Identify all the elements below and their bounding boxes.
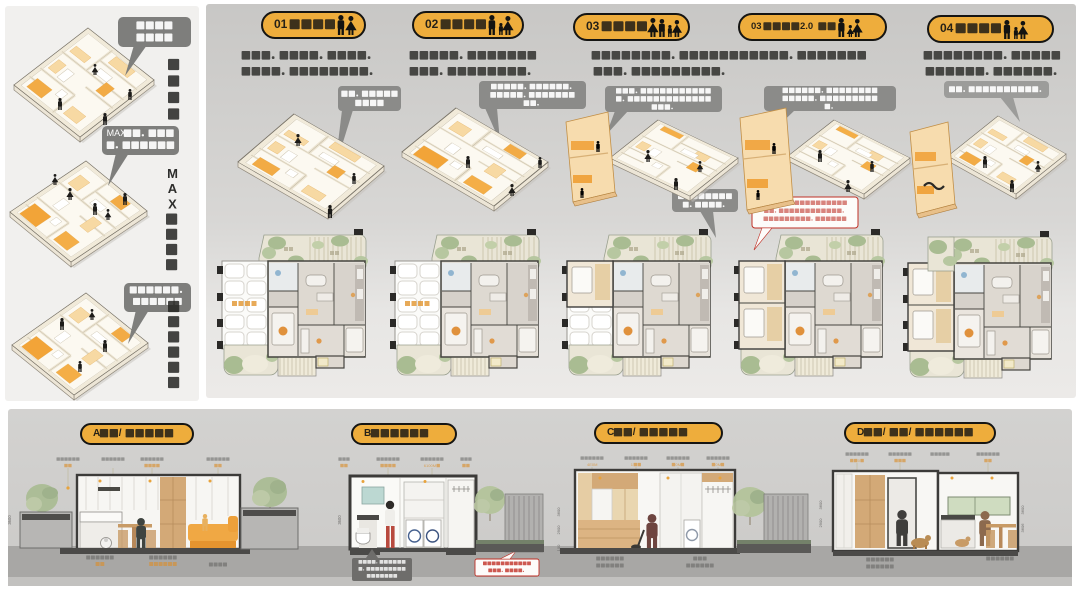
svg-text:03: 03	[751, 21, 762, 32]
svg-text:A: A	[93, 428, 100, 439]
svg-text:B: B	[364, 428, 371, 439]
svg-text:0M: 0M	[676, 462, 682, 467]
svg-text:MAX: MAX	[107, 128, 127, 138]
svg-text:6100M: 6100M	[424, 463, 436, 468]
svg-text:3606: 3606	[1020, 523, 1025, 533]
svg-text:3600: 3600	[7, 515, 12, 525]
svg-text:01: 01	[274, 17, 288, 31]
svg-text:D: D	[857, 427, 864, 438]
svg-text:2.0: 2.0	[800, 21, 813, 32]
svg-text:3600: 3600	[337, 515, 342, 525]
svg-text:3600: 3600	[818, 500, 823, 510]
svg-text:/: /	[633, 427, 636, 438]
svg-text:2900: 2900	[818, 518, 823, 528]
svg-text:3600: 3600	[556, 507, 561, 517]
svg-text:A: A	[168, 181, 178, 196]
svg-text:/: /	[909, 427, 912, 438]
svg-text:X: X	[168, 196, 177, 211]
svg-text:02: 02	[425, 17, 439, 31]
svg-text:M: M	[167, 166, 178, 181]
svg-text:03: 03	[586, 19, 600, 33]
svg-text:04: 04	[940, 21, 954, 35]
svg-text:4E0M: 4E0M	[587, 462, 597, 467]
svg-text:/: /	[119, 428, 122, 439]
svg-text:3600: 3600	[1020, 505, 1025, 515]
svg-text:2900: 2900	[556, 525, 561, 535]
svg-text:0M: 0M	[716, 462, 722, 467]
svg-text:/: /	[883, 427, 886, 438]
svg-text:C: C	[607, 427, 614, 438]
